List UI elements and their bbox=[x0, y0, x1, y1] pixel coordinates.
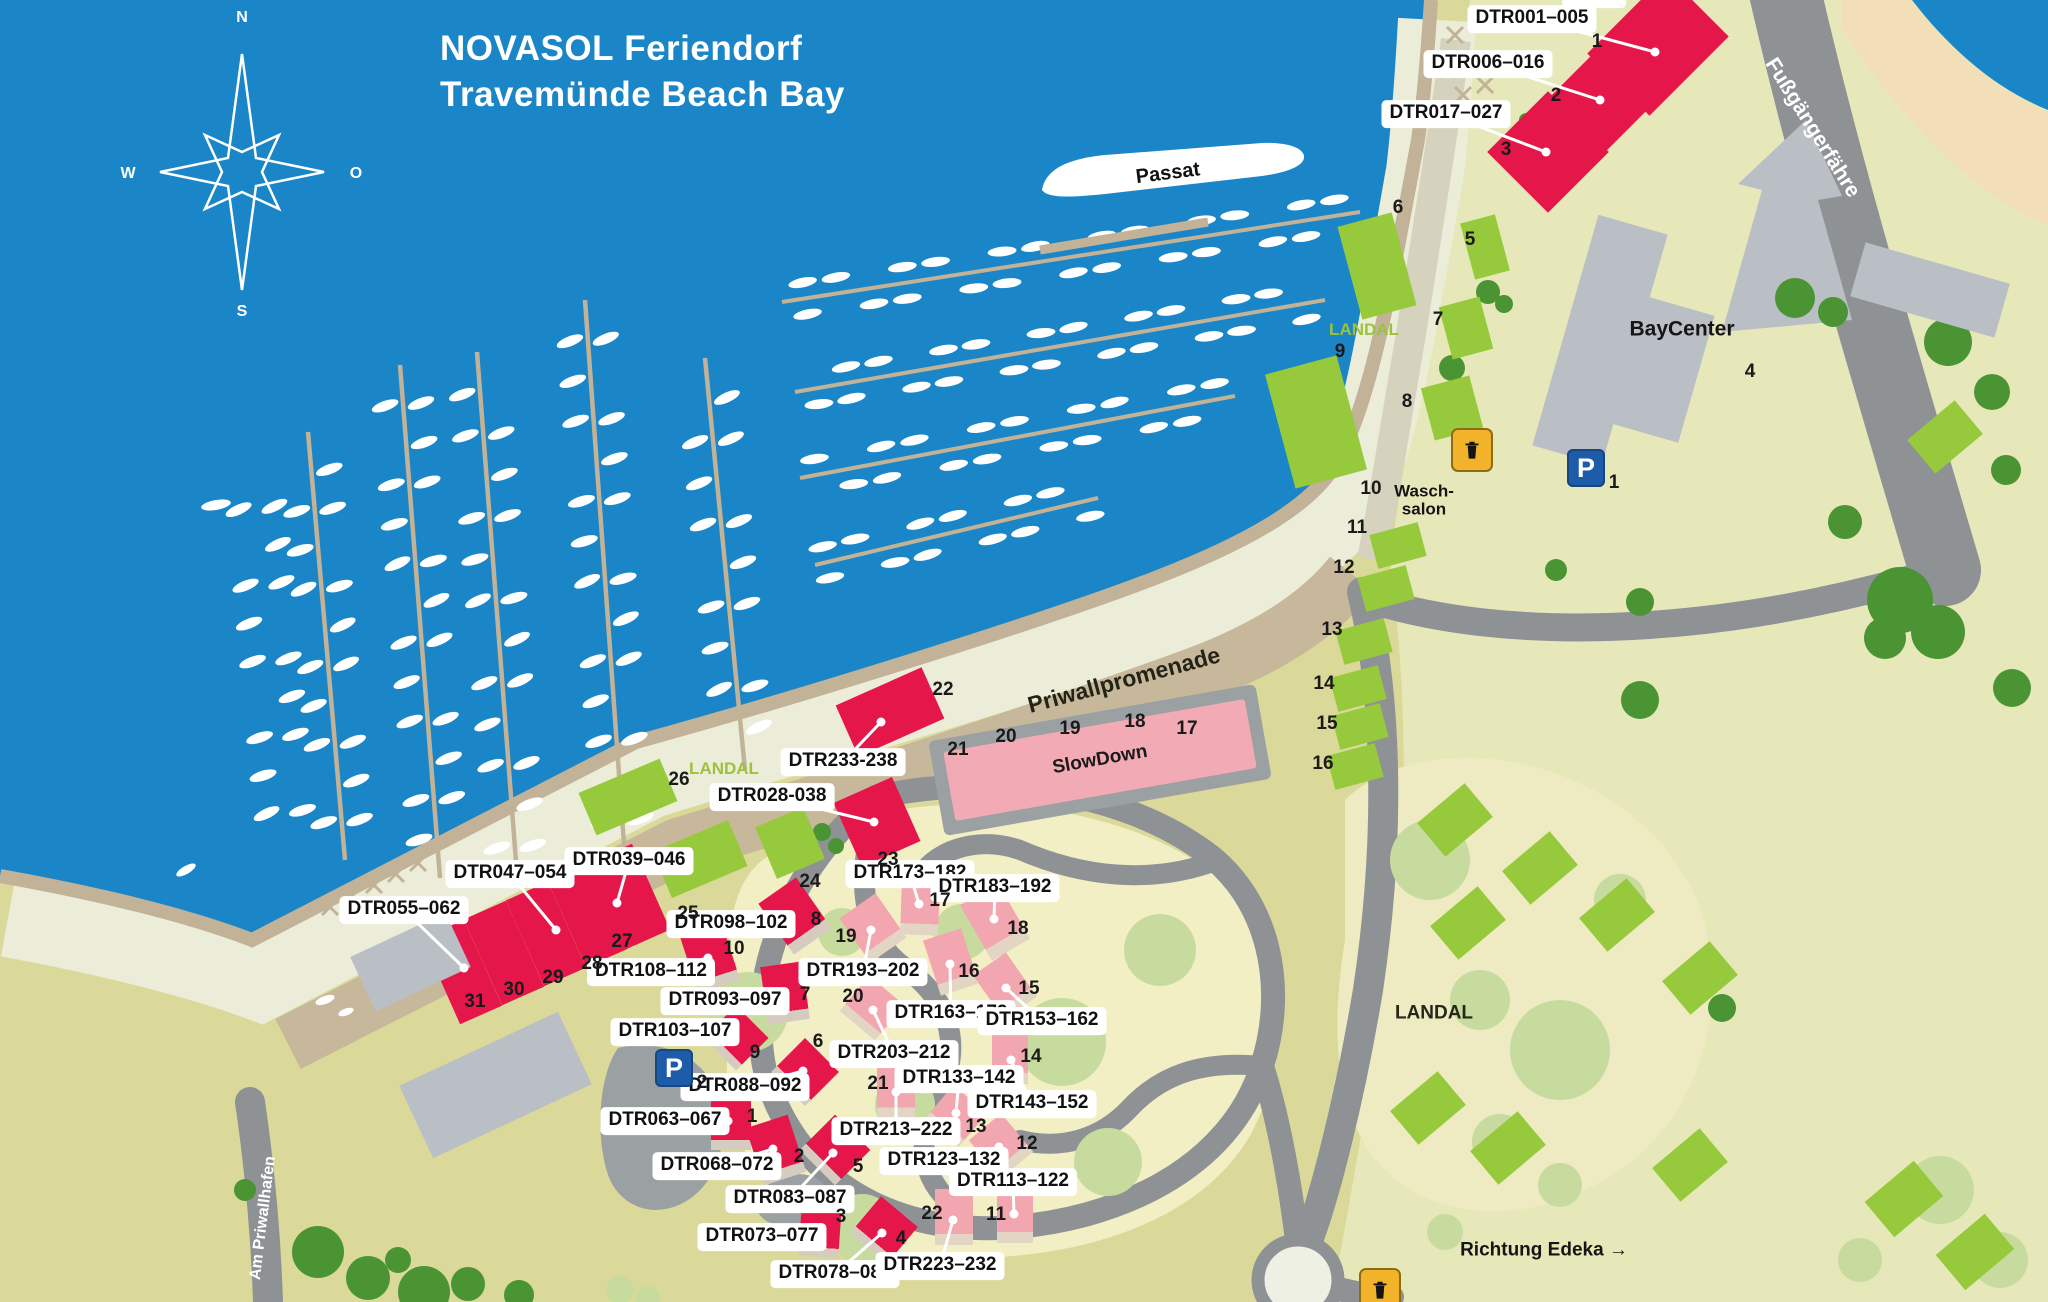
resort-map: SlowDown DTR001–005DTR006–016DTR017–027D… bbox=[0, 0, 2048, 1302]
compass-s: S bbox=[237, 303, 248, 321]
title-line2: Travemünde Beach Bay bbox=[440, 72, 845, 118]
brand-name: NOVASOL bbox=[440, 29, 614, 68]
compass-star-icon bbox=[92, 6, 392, 326]
parking-icon: P bbox=[655, 1049, 693, 1087]
parking-number: 2 bbox=[697, 1072, 708, 1094]
compass-rose: N S W O bbox=[92, 6, 392, 326]
parking-number: 1 bbox=[1609, 472, 1620, 494]
compass-o: O bbox=[350, 165, 362, 183]
waste-bin-icon bbox=[1359, 1268, 1401, 1302]
title-line1-rest: Feriendorf bbox=[614, 29, 802, 68]
compass-n: N bbox=[236, 9, 248, 27]
map-title: NOVASOL Feriendorf Travemünde Beach Bay bbox=[440, 26, 845, 117]
parking-icon: P bbox=[1567, 449, 1605, 487]
compass-w: W bbox=[120, 165, 135, 183]
waste-bin-icon bbox=[1451, 428, 1493, 472]
